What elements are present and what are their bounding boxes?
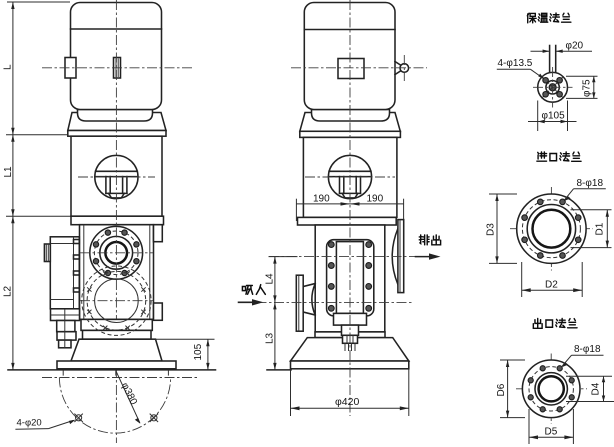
svg-text:L3: L3 xyxy=(265,332,276,344)
svg-text:D1: D1 xyxy=(595,222,606,235)
svg-text:L4: L4 xyxy=(265,273,276,285)
svg-text:105: 105 xyxy=(193,343,204,360)
svg-text:L1: L1 xyxy=(3,166,14,178)
svg-text:8-φ18: 8-φ18 xyxy=(577,178,604,189)
svg-text:φ20: φ20 xyxy=(566,41,584,52)
svg-text:D5: D5 xyxy=(545,427,558,438)
svg-text:φ105: φ105 xyxy=(542,111,566,122)
svg-text:4-φ20: 4-φ20 xyxy=(17,418,42,429)
svg-text:D4: D4 xyxy=(591,382,602,395)
svg-text:φ75: φ75 xyxy=(582,79,593,97)
svg-text:φ420: φ420 xyxy=(335,396,359,408)
svg-text:L: L xyxy=(3,64,14,70)
svg-text:190: 190 xyxy=(313,194,330,205)
svg-text:4-φ13.5: 4-φ13.5 xyxy=(498,58,533,69)
svg-text:D2: D2 xyxy=(545,280,558,291)
svg-text:190: 190 xyxy=(367,194,384,205)
svg-text:8-φ18: 8-φ18 xyxy=(574,344,601,355)
svg-text:D6: D6 xyxy=(496,383,507,396)
svg-text:D3: D3 xyxy=(486,223,497,236)
svg-text:L2: L2 xyxy=(3,285,14,297)
